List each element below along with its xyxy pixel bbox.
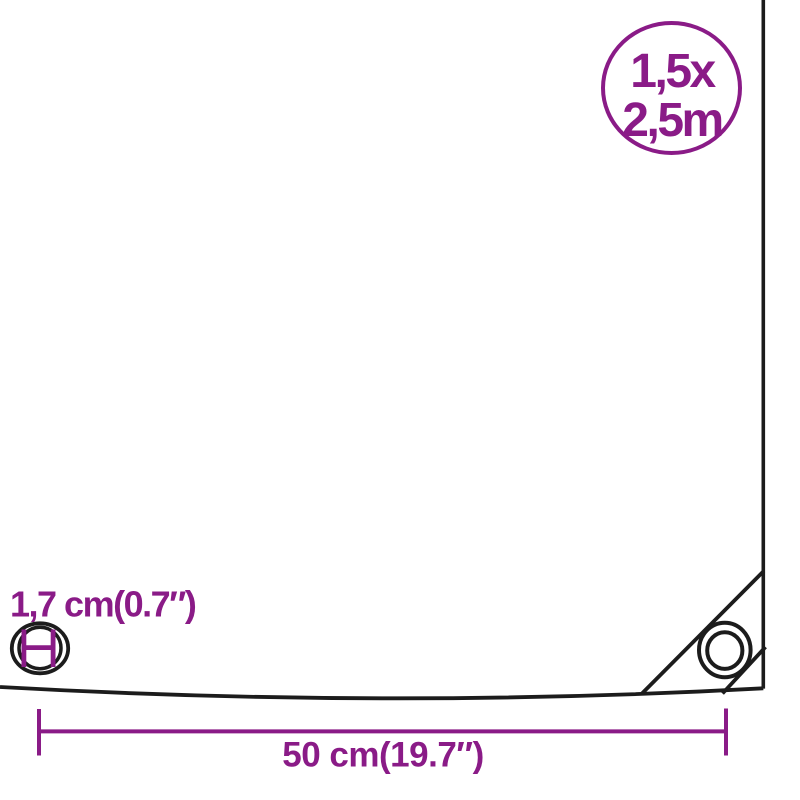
eyelet-diameter-label: 1,7 cm(0.7″): [10, 584, 196, 625]
tarp-diagram-canvas: 1,7 cm(0.7″) 50 cm(19.7″) 1,5x 2,5m: [0, 0, 800, 800]
eyelet-spacing-label: 50 cm(19.7″): [282, 736, 483, 775]
eyelet-right-inner-ring: [707, 632, 742, 669]
size-badge-line2: 2,5m: [622, 94, 721, 147]
size-badge-line1: 1,5x: [630, 45, 716, 98]
product-dimension-image: 1,7 cm(0.7″) 50 cm(19.7″) 1,5x 2,5m: [0, 0, 800, 800]
